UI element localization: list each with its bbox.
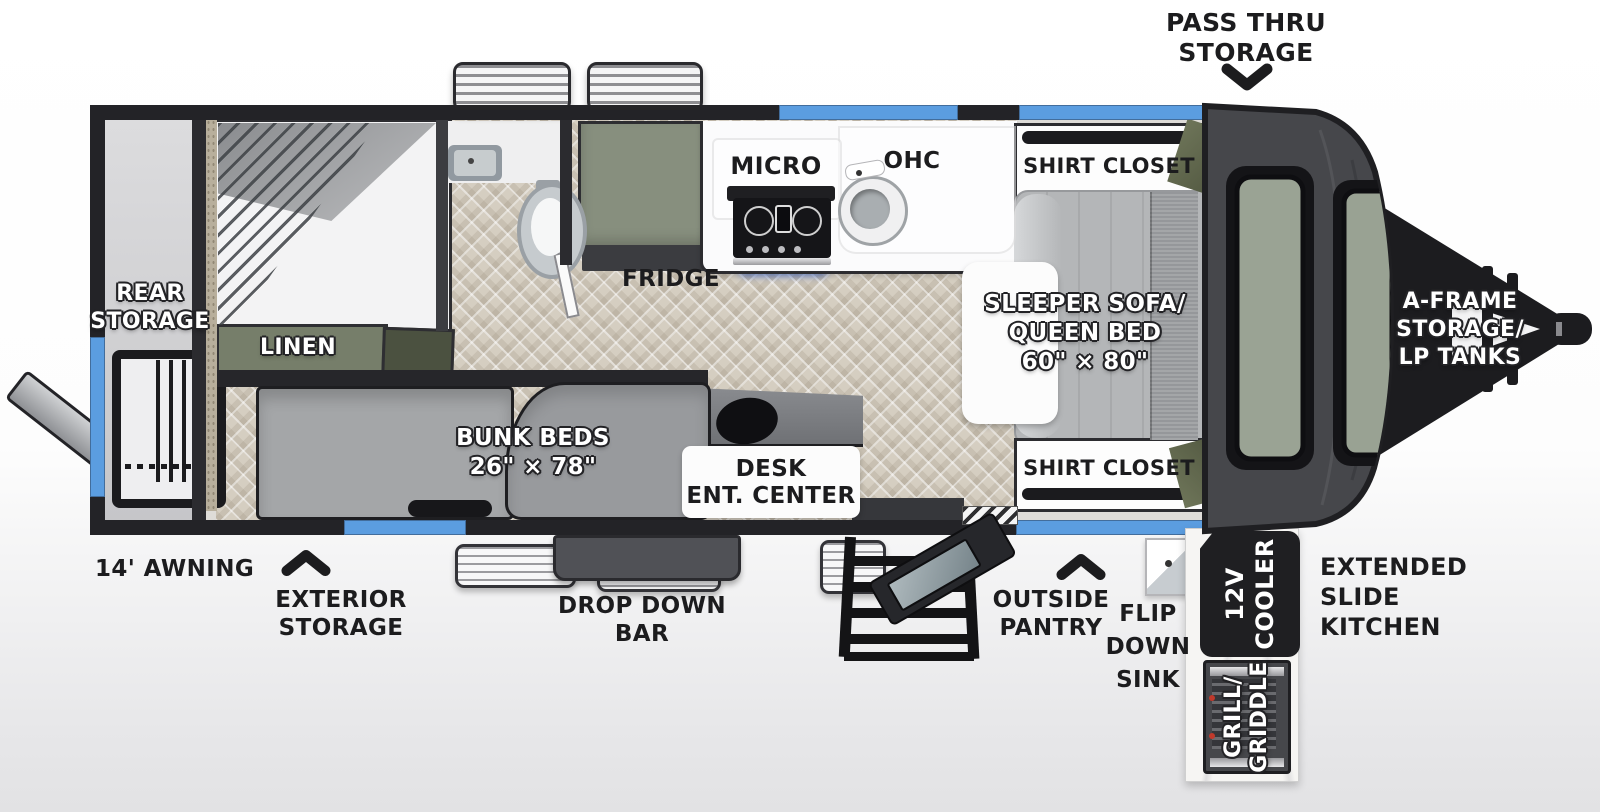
chevron-up-icon bbox=[281, 548, 331, 578]
partition-bath-kitchen bbox=[560, 119, 572, 265]
sink-drain-dot bbox=[1165, 560, 1172, 567]
grill-knob-red bbox=[1209, 733, 1215, 739]
window-top-1 bbox=[779, 105, 958, 120]
drop-down-bar-label: DROP DOWN BAR bbox=[517, 592, 767, 648]
fridge-cabinet bbox=[578, 121, 718, 251]
stove-burner-icon bbox=[792, 206, 822, 236]
rear-storage-label: REAR STORAGE bbox=[75, 280, 225, 335]
window-rear bbox=[90, 337, 105, 497]
12v-cooler-label: 12V COOLER bbox=[1220, 538, 1280, 650]
bath-sink-bowl bbox=[454, 150, 496, 176]
shower-end-wall bbox=[436, 119, 448, 331]
cap-window-glass bbox=[1237, 177, 1303, 459]
shirt-closet-top-label: SHIRT CLOSET bbox=[1014, 154, 1204, 179]
stove-knob bbox=[794, 246, 801, 253]
shirt-closet-bottom-label: SHIRT CLOSET bbox=[1014, 456, 1204, 481]
bath-faucet-icon bbox=[468, 158, 474, 164]
bunk-beds-label: BUNK BEDS 26" × 78" bbox=[413, 424, 653, 482]
pass-thru-storage-label: PASS THRU STORAGE bbox=[1121, 8, 1371, 68]
stove-knob bbox=[762, 246, 769, 253]
stove-burner-icon bbox=[744, 206, 774, 236]
hitch-latch bbox=[1556, 322, 1562, 336]
entry-cabinet bbox=[852, 498, 964, 522]
extended-slide-kitchen-label: EXTENDED SLIDE KITCHEN bbox=[1320, 552, 1540, 642]
exterior-storage-label: EXTERIOR STORAGE bbox=[216, 586, 466, 642]
kitchen-sink-bowl bbox=[850, 189, 890, 229]
stove-knob bbox=[746, 246, 753, 253]
grill-griddle-label: GRILL/ GRIDDLE bbox=[1221, 661, 1273, 773]
linen-label: LINEN bbox=[223, 334, 373, 362]
flip-down-sink-label: FLIP DOWN SINK bbox=[1072, 598, 1224, 697]
desk-ent-center-label: DESK ENT. CENTER bbox=[682, 456, 860, 510]
stove-knob bbox=[778, 246, 785, 253]
ohc-label: OHC bbox=[862, 148, 962, 176]
stove-center-grate bbox=[775, 205, 792, 233]
bunk-handle bbox=[408, 500, 492, 517]
closet-rod-bottom bbox=[1022, 488, 1200, 500]
step-rung bbox=[844, 652, 974, 661]
window-top-2 bbox=[1019, 105, 1206, 120]
fridge-label: FRIDGE bbox=[596, 266, 746, 294]
window-bottom-2 bbox=[1016, 520, 1206, 535]
micro-label: MICRO bbox=[716, 152, 836, 181]
chevron-down-icon bbox=[1221, 62, 1273, 92]
rear-hatch-dotted-line bbox=[125, 464, 195, 469]
awning-label: 14' AWNING bbox=[95, 556, 255, 584]
closet-rod-top bbox=[1022, 131, 1200, 144]
sleeper-sofa-label: SLEEPER SOFA/ QUEEN BED 60" × 80" bbox=[955, 290, 1215, 377]
chevron-up-icon bbox=[1056, 552, 1106, 582]
a-frame-storage-label: A-FRAME STORAGE/ LP TANKS bbox=[1390, 288, 1530, 372]
drop-down-bar bbox=[553, 535, 741, 581]
floorplan-canvas: PASS THRU STORAGE REAR STORAGE LINEN FRI… bbox=[0, 0, 1600, 812]
hitch-coupler bbox=[1546, 313, 1592, 345]
stove-trim bbox=[733, 258, 831, 265]
window-bottom-1 bbox=[344, 520, 466, 535]
